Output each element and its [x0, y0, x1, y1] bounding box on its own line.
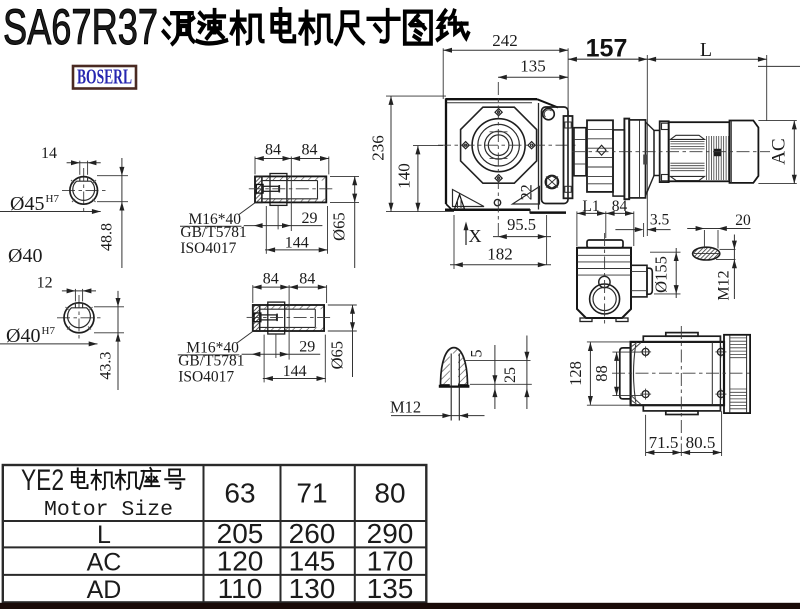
svg-text:L: L: [97, 521, 111, 549]
svg-text:290: 290: [367, 518, 414, 549]
svg-text:GB/T5781: GB/T5781: [178, 353, 244, 370]
svg-text:95.5: 95.5: [507, 215, 536, 234]
svg-text:88: 88: [592, 365, 611, 382]
svg-text:20: 20: [735, 212, 751, 229]
svg-text:H7: H7: [46, 193, 60, 205]
svg-text:140: 140: [395, 163, 414, 189]
svg-text:ISO4017: ISO4017: [178, 369, 234, 386]
svg-text:110: 110: [218, 573, 263, 604]
svg-text:AD: AD: [87, 576, 122, 604]
svg-text:205: 205: [217, 518, 264, 549]
svg-text:84: 84: [263, 270, 279, 287]
svg-text:71: 71: [296, 478, 327, 509]
svg-text:182: 182: [487, 245, 513, 264]
svg-text:135: 135: [367, 573, 414, 604]
svg-text:84: 84: [265, 142, 281, 159]
svg-text:L: L: [700, 39, 712, 61]
svg-text:M12: M12: [390, 398, 421, 417]
svg-text:M12: M12: [715, 270, 732, 300]
svg-text:236: 236: [369, 135, 388, 161]
svg-text:120: 120: [217, 546, 264, 577]
svg-text:80: 80: [374, 478, 405, 509]
svg-text:242: 242: [492, 31, 518, 50]
svg-text:71.5: 71.5: [649, 433, 679, 452]
svg-text:AC: AC: [769, 138, 790, 164]
svg-text:SA67R37: SA67R37: [3, 0, 158, 55]
svg-text:ISO4017: ISO4017: [180, 240, 236, 257]
svg-text:128: 128: [566, 361, 585, 386]
svg-text:5: 5: [469, 350, 486, 358]
svg-text:25: 25: [502, 367, 519, 383]
svg-text:12: 12: [37, 275, 53, 292]
svg-text:135: 135: [520, 57, 546, 76]
svg-text:X: X: [469, 226, 482, 246]
svg-text:48.8: 48.8: [99, 223, 116, 251]
svg-text:H7: H7: [42, 325, 56, 337]
svg-text:GB/T5781: GB/T5781: [180, 224, 246, 241]
svg-text:Ø155: Ø155: [652, 256, 671, 293]
svg-text:YE2: YE2: [21, 464, 64, 497]
svg-text:170: 170: [367, 546, 414, 577]
svg-text:Motor Size: Motor Size: [44, 498, 173, 522]
svg-text:80.5: 80.5: [686, 433, 716, 452]
svg-text:84: 84: [299, 270, 315, 287]
svg-text:144: 144: [283, 363, 307, 380]
svg-text:84: 84: [302, 142, 318, 159]
svg-text:260: 260: [289, 518, 336, 549]
svg-text:14: 14: [41, 145, 57, 162]
svg-text:Ø40: Ø40: [8, 245, 42, 267]
svg-text:Ø65: Ø65: [330, 212, 349, 240]
svg-text:157: 157: [586, 35, 628, 63]
svg-text:29: 29: [299, 338, 315, 355]
svg-text:130: 130: [289, 573, 336, 604]
svg-text:29: 29: [302, 210, 318, 227]
svg-text:43.3: 43.3: [98, 352, 115, 380]
svg-text:Ø65: Ø65: [327, 341, 346, 369]
svg-text:AC: AC: [87, 549, 122, 577]
svg-text:145: 145: [289, 546, 336, 577]
svg-text:BOSERL: BOSERL: [77, 65, 132, 89]
svg-text:22: 22: [519, 184, 536, 200]
svg-text:63: 63: [224, 478, 255, 509]
svg-text:144: 144: [285, 235, 309, 252]
svg-text:3.5: 3.5: [650, 211, 670, 228]
